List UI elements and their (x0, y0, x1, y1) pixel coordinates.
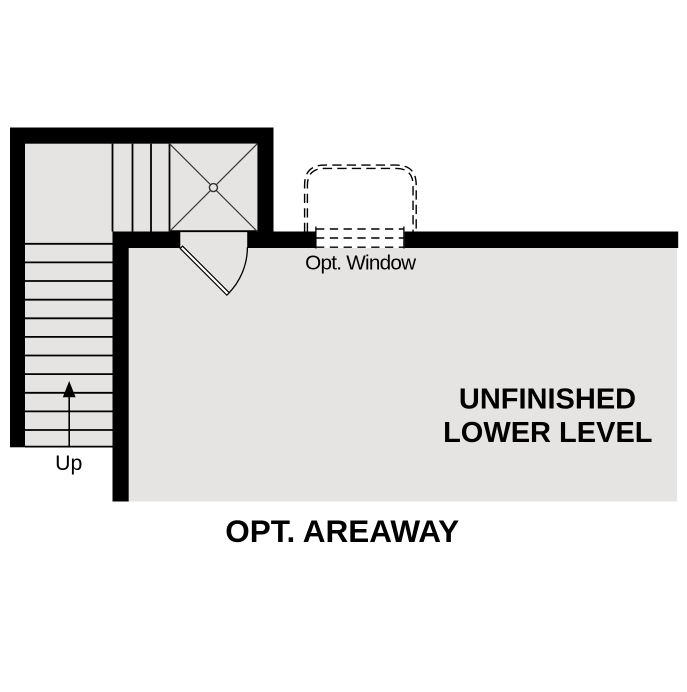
svg-text:OPT. AREAWAY: OPT. AREAWAY (225, 513, 459, 549)
svg-text:UNFINISHED: UNFINISHED (459, 383, 636, 415)
svg-text:Opt. Window: Opt. Window (305, 252, 416, 275)
svg-text:LOWER LEVEL: LOWER LEVEL (443, 417, 652, 449)
svg-text:Up: Up (55, 451, 82, 475)
